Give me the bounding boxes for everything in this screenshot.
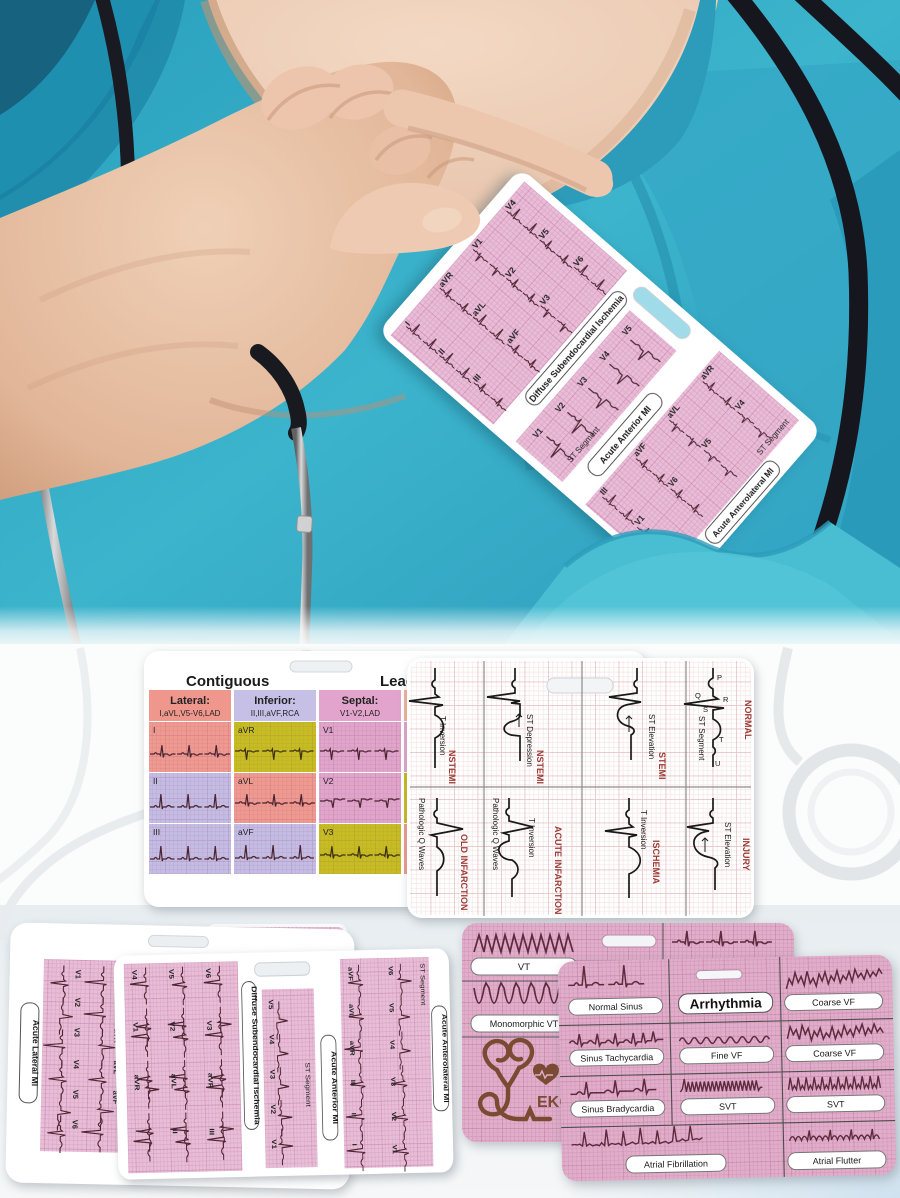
svg-text:ACUTE INFARCTION: ACUTE INFARCTION: [553, 826, 563, 915]
svg-text:T Inversion: T Inversion: [639, 810, 648, 849]
svg-text:Contiguous: Contiguous: [186, 673, 269, 690]
svg-text:ISCHEMIA: ISCHEMIA: [651, 840, 661, 885]
svg-text:Atrial Fibrillation: Atrial Fibrillation: [644, 1158, 708, 1169]
svg-text:II,III,aVF,RCA: II,III,aVF,RCA: [251, 709, 300, 718]
svg-text:Atrial Flutter: Atrial Flutter: [813, 1155, 862, 1166]
svg-text:Arrhythmia: Arrhythmia: [689, 995, 762, 1012]
svg-text:SVT: SVT: [827, 1099, 845, 1109]
svg-text:Fine VF: Fine VF: [711, 1050, 743, 1061]
svg-text:V2: V2: [73, 998, 82, 1007]
svg-text:V1: V1: [323, 725, 334, 735]
svg-text:I,aVL,V5-V6,LAD: I,aVL,V5-V6,LAD: [160, 709, 221, 718]
svg-text:Coarse VF: Coarse VF: [813, 1048, 857, 1059]
svg-text:P: P: [717, 673, 722, 682]
svg-text:T Inversion: T Inversion: [438, 716, 447, 755]
svg-text:NSTEMI: NSTEMI: [447, 750, 457, 784]
svg-text:II: II: [153, 776, 158, 786]
svg-text:U: U: [715, 759, 720, 768]
svg-text:V5: V5: [71, 1090, 80, 1099]
svg-text:OLD INFARCTION: OLD INFARCTION: [459, 834, 469, 911]
svg-text:INJURY: INJURY: [741, 838, 751, 871]
svg-text:NSTEMI: NSTEMI: [535, 750, 545, 784]
svg-text:ST Elevation: ST Elevation: [723, 822, 732, 867]
svg-text:Q: Q: [695, 691, 701, 700]
svg-text:ST Segment: ST Segment: [697, 716, 706, 761]
svg-text:STEMI: STEMI: [657, 752, 667, 780]
svg-text:Monomorphic VT: Monomorphic VT: [490, 1019, 559, 1029]
svg-text:Septal:: Septal:: [342, 695, 379, 707]
svg-text:NORMAL: NORMAL: [743, 700, 753, 740]
svg-text:V3: V3: [72, 1028, 81, 1037]
svg-text:Acute Lateral MI: Acute Lateral MI: [30, 1020, 41, 1087]
svg-text:aVR: aVR: [238, 725, 255, 735]
svg-text:Lateral:: Lateral:: [170, 695, 210, 707]
svg-text:V2: V2: [323, 776, 334, 786]
svg-text:T Inversion: T Inversion: [527, 818, 536, 857]
svg-text:III: III: [153, 827, 160, 837]
svg-text:Sinus Tachycardia: Sinus Tachycardia: [580, 1052, 653, 1064]
svg-text:V4: V4: [72, 1060, 81, 1070]
svg-text:R: R: [723, 695, 729, 704]
svg-text:Pathologic Q Waves: Pathologic Q Waves: [417, 798, 426, 870]
svg-text:ST Depression: ST Depression: [525, 714, 534, 767]
svg-text:V6: V6: [70, 1120, 79, 1129]
svg-text:Pathologic Q Waves: Pathologic Q Waves: [491, 798, 500, 870]
svg-text:SVT: SVT: [719, 1101, 737, 1111]
svg-text:V3: V3: [323, 827, 334, 837]
svg-text:I: I: [153, 725, 155, 735]
svg-text:V1-V2,LAD: V1-V2,LAD: [340, 709, 380, 718]
svg-text:S: S: [703, 705, 708, 714]
svg-text:aVF: aVF: [238, 827, 254, 837]
svg-text:V1: V1: [74, 970, 83, 979]
svg-text:Coarse VF: Coarse VF: [812, 997, 856, 1008]
svg-text:aVL: aVL: [238, 776, 253, 786]
svg-text:Sinus Bradycardia: Sinus Bradycardia: [581, 1103, 654, 1115]
svg-text:ST Elevation: ST Elevation: [647, 714, 656, 759]
svg-text:T: T: [719, 735, 724, 744]
svg-text:VT: VT: [518, 962, 530, 973]
svg-text:Inferior:: Inferior:: [254, 695, 296, 707]
svg-text:Normal Sinus: Normal Sinus: [589, 1001, 644, 1012]
